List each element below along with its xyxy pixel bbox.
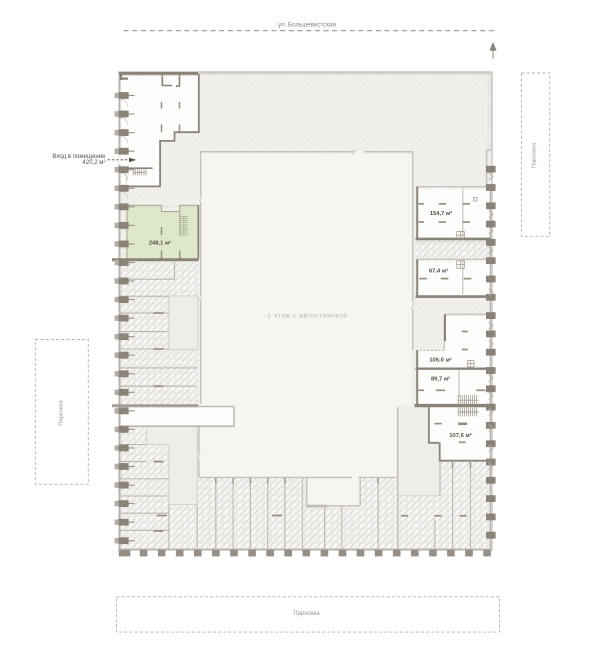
svg-text:Парковка: Парковка [293,611,320,617]
svg-text:154,7 м²: 154,7 м² [430,210,452,217]
svg-text:Парковка: Парковка [532,142,538,168]
svg-text:106,0 м²: 106,0 м² [429,356,451,363]
svg-text:89,7 м²: 89,7 м² [431,375,450,382]
svg-text:Парковка: Парковка [58,400,64,426]
svg-text:107,6 м²: 107,6 м² [449,432,471,439]
svg-text:67,4 м²: 67,4 м² [429,267,448,274]
svg-text:-1 этаж с автостоянкой: -1 этаж с автостоянкой [264,312,347,320]
svg-text:ул. Большевистская: ул. Большевистская [278,21,336,28]
svg-text:248,1 м²: 248,1 м² [149,239,171,246]
svg-text:420,2 м²: 420,2 м² [82,159,105,166]
